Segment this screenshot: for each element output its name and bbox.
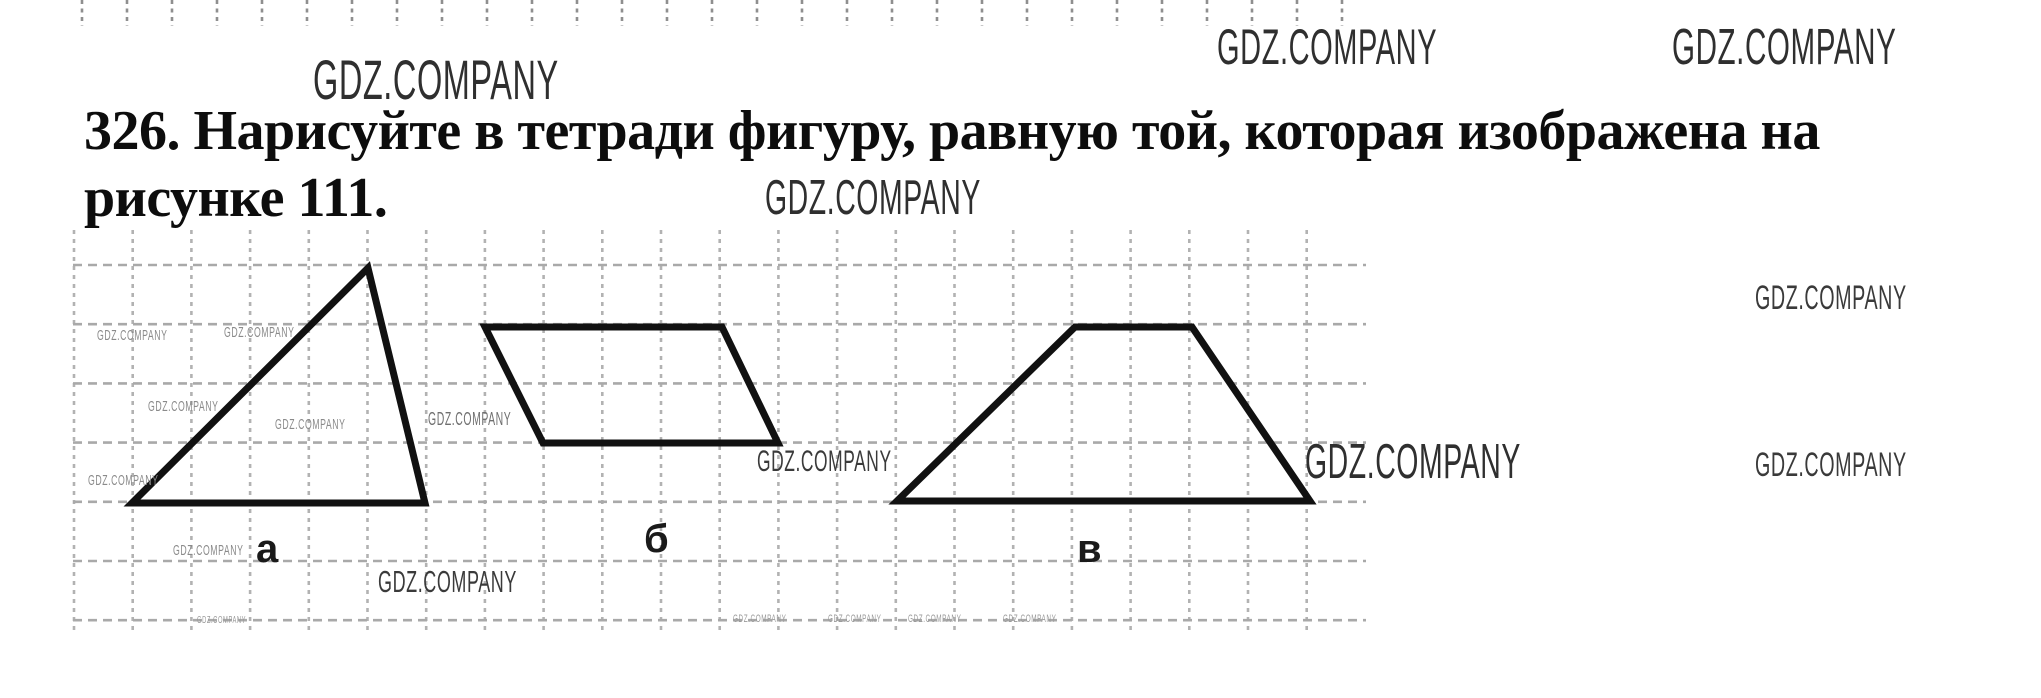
gdz-watermark: GDZ.COMPANY [765,174,981,223]
gdz-watermark: GDZ.COMPANY [197,616,246,626]
gdz-watermark: GDZ.COMPANY [1217,22,1437,72]
gdz-watermark: GDZ.COMPANY [1755,448,1907,482]
parallelogram-shape [485,327,778,443]
gdz-watermark: GDZ.COMPANY [173,543,244,558]
gdz-watermark: GDZ.COMPANY [733,614,786,625]
gdz-watermark: GDZ.COMPANY [1672,21,1896,72]
figure-label-parallelogram: б [644,519,669,559]
figure-label-triangle: а [256,529,278,569]
gdz-watermark: GDZ.COMPANY [1003,614,1056,625]
gdz-watermark: GDZ.COMPANY [148,399,219,414]
gdz-watermark: GDZ.COMPANY [1305,438,1521,487]
figure-label-trapezoid: в [1077,529,1102,569]
gdz-watermark: GDZ.COMPANY [224,325,295,340]
gdz-watermark: GDZ.COMPANY [908,614,961,625]
notebook-ruling-top [82,0,1342,26]
gdz-watermark: GDZ.COMPANY [97,328,168,343]
grid-vertical-lines [74,230,1307,632]
gdz-watermark: GDZ.COMPANY [1755,281,1907,315]
gdz-watermark: GDZ.COMPANY [88,473,159,488]
gdz-watermark: GDZ.COMPANY [313,52,559,108]
gdz-watermark: GDZ.COMPANY [378,566,517,597]
gdz-watermark: GDZ.COMPANY [275,417,346,432]
gdz-watermark: GDZ.COMPANY [828,614,881,625]
textbook-page: 326. Нарисуйте в тетради фигуру, равную … [0,0,2041,698]
gdz-watermark: GDZ.COMPANY [428,410,511,428]
triangle-shape [132,268,425,503]
gdz-watermark: GDZ.COMPANY [757,447,892,477]
problem-title-line2: рисунке 111. [84,165,387,232]
